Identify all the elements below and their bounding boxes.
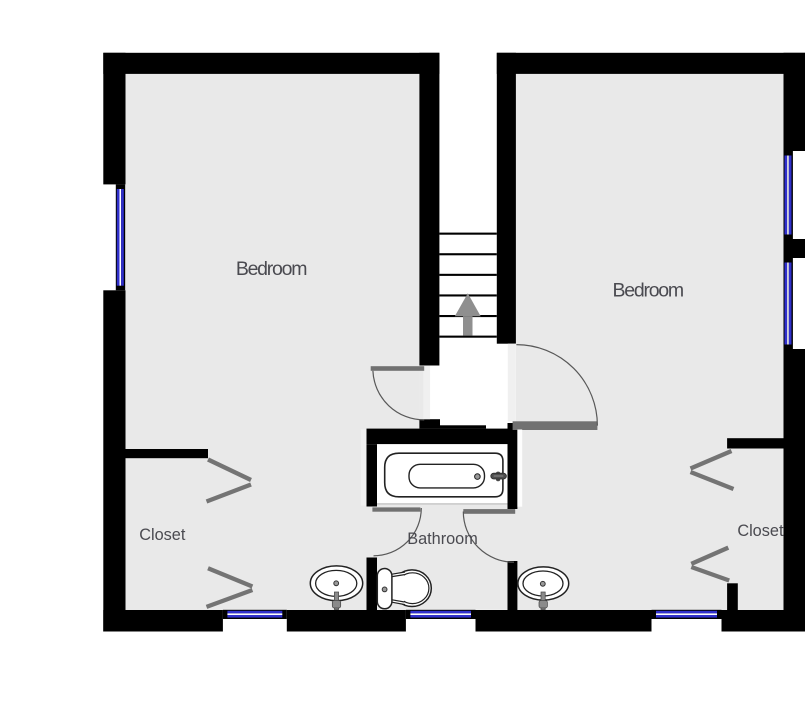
svg-text:Bedroom: Bedroom — [236, 258, 306, 280]
svg-text:Closet: Closet — [737, 522, 784, 540]
svg-text:Bedroom: Bedroom — [613, 279, 683, 301]
svg-text:Bathroom: Bathroom — [407, 530, 478, 548]
svg-text:Closet: Closet — [139, 526, 186, 544]
